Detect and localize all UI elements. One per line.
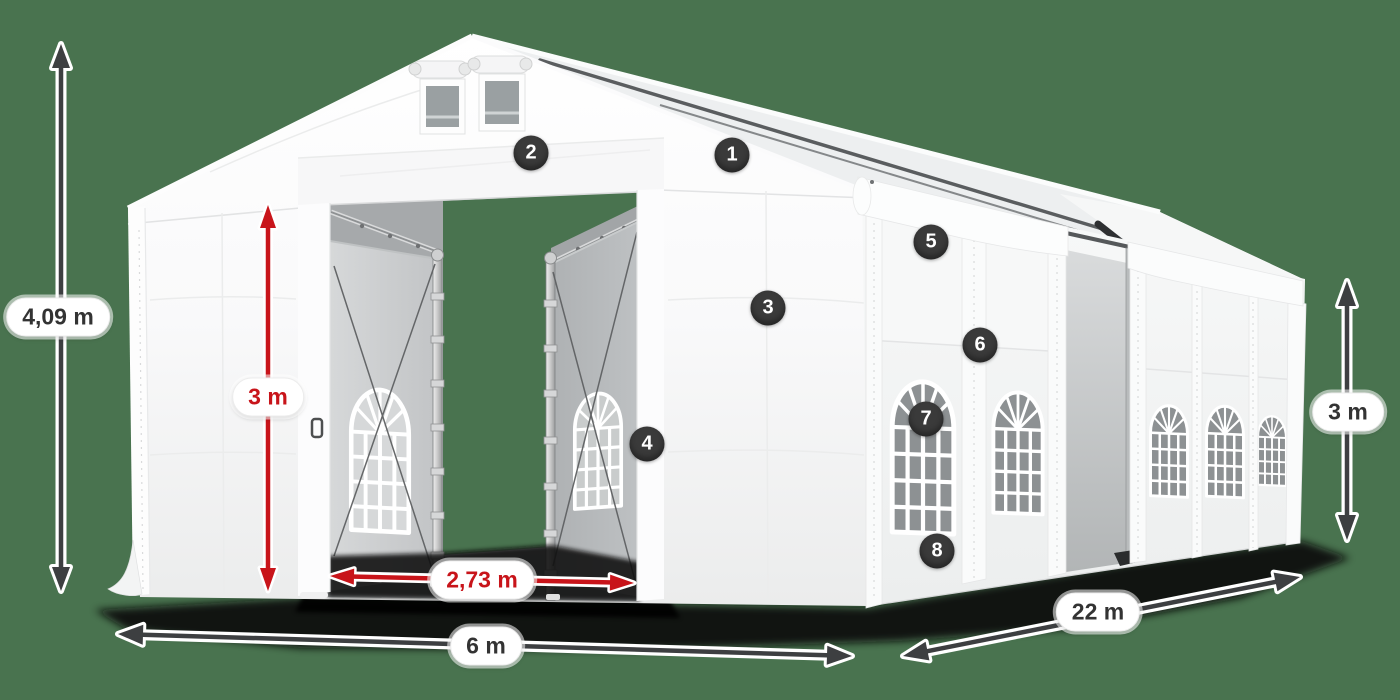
door-post-left: [431, 249, 444, 586]
dimension-label-total-height: 4,09 m: [6, 298, 110, 337]
corner-pole-left: [108, 206, 150, 596]
callout-badge-7: 7: [909, 402, 944, 437]
callout-badge-2: 2: [514, 136, 549, 171]
dimension-label-side-height: 3 m: [1312, 393, 1384, 432]
callout-badge-6: 6: [963, 328, 998, 363]
dimension-label-front-width: 6 m: [450, 627, 522, 666]
callout-badge-5: 5: [914, 225, 949, 260]
tent-illustration: [0, 0, 1400, 700]
callout-badge-4: 4: [630, 427, 665, 462]
dimension-label-door-height: 3 m: [232, 378, 304, 417]
dimension-label-side-length: 22 m: [1056, 593, 1140, 632]
door-leaf-left: [330, 241, 437, 591]
callout-badge-3: 3: [751, 291, 786, 326]
dimension-label-door-width: 2,73 m: [430, 561, 534, 600]
doorway-interior: [328, 189, 640, 601]
product-illustration-scene: 4,09 m 3 m 2,73 m 6 m 22 m 3 m 1 2 3 4 5…: [0, 0, 1400, 700]
door-leaf-right: [551, 221, 640, 597]
callout-badge-8: 8: [920, 534, 955, 569]
callout-badge-1: 1: [715, 138, 750, 173]
